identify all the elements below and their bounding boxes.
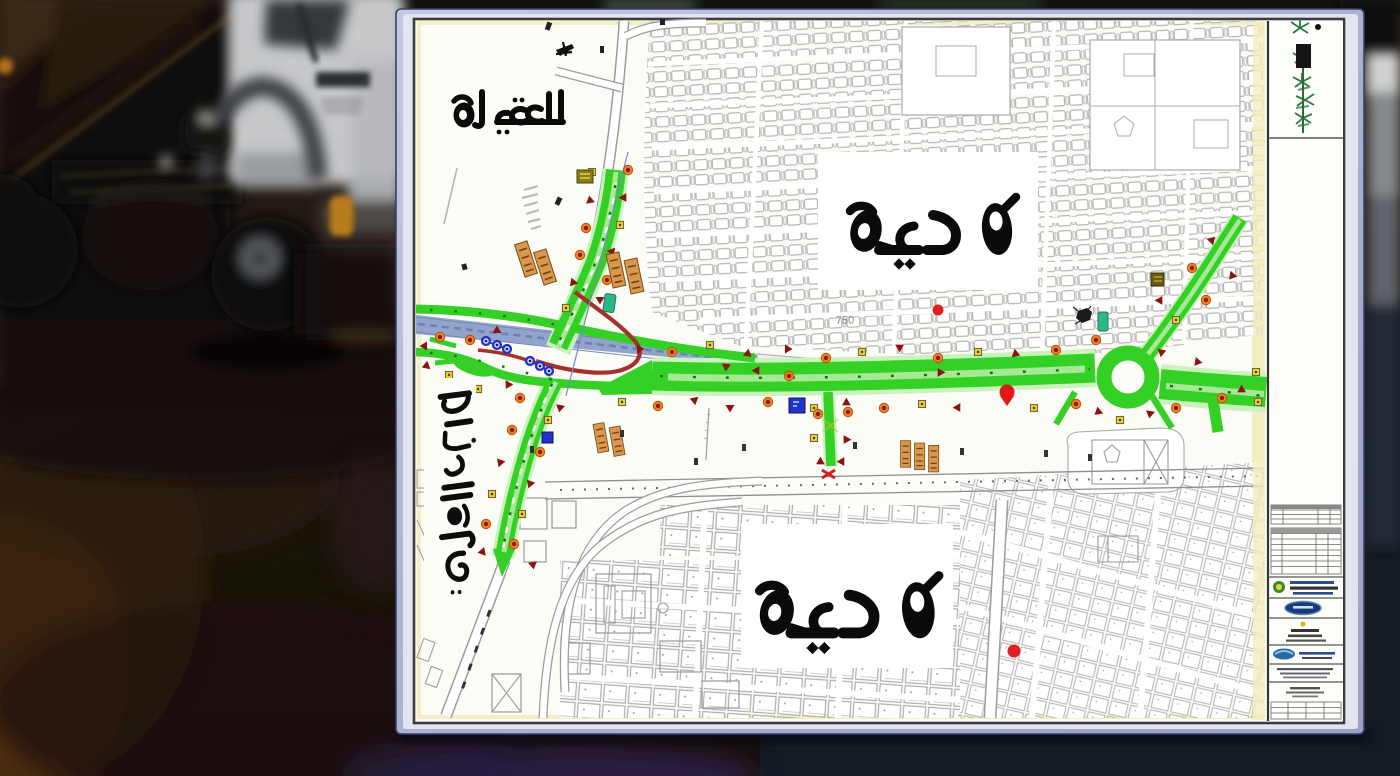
- svg-text:750: 750: [836, 314, 855, 327]
